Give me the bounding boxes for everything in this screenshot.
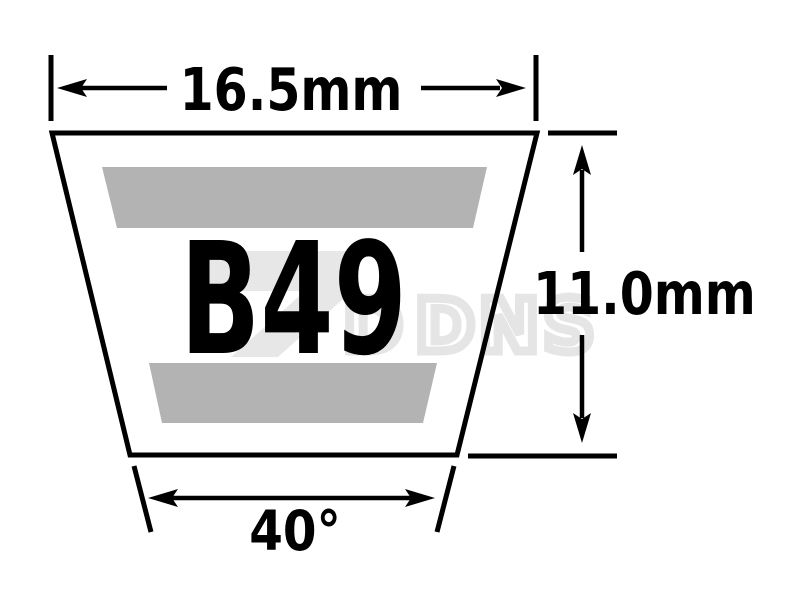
- arrowhead-right: [496, 79, 526, 97]
- top-width-label: 16.5mm: [180, 56, 403, 125]
- angle-label: 40°: [249, 500, 341, 564]
- extension-line-right: [437, 466, 454, 532]
- top-width-dimension: 16.5mm: [51, 55, 536, 124]
- angle-dimension: 40°: [134, 466, 454, 564]
- belt-diagram-canvas: D DNS B49 16.5mm 11.0mm: [0, 0, 800, 600]
- extension-line-left: [134, 466, 151, 532]
- v-belt-cross-section-diagram: D DNS B49 16.5mm 11.0mm: [0, 0, 800, 600]
- height-label: 11.0mm: [533, 260, 756, 329]
- belt-size-label: B49: [180, 210, 407, 390]
